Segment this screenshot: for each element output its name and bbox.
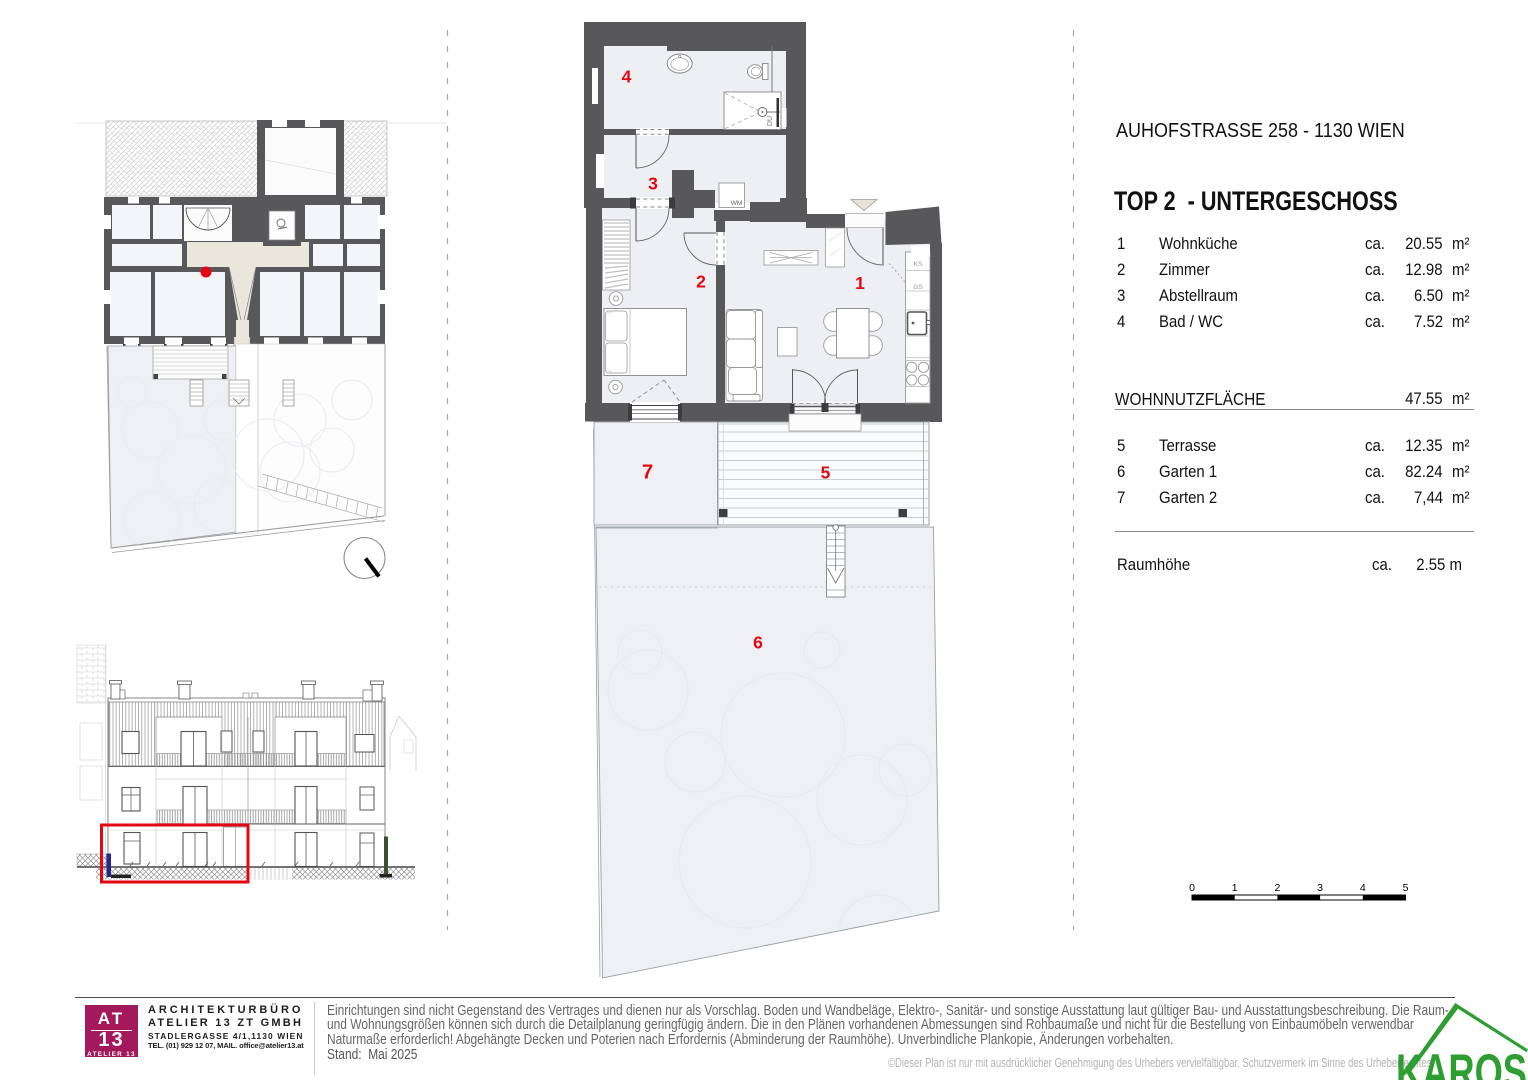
svg-text:KAROS: KAROS: [1396, 1044, 1527, 1080]
